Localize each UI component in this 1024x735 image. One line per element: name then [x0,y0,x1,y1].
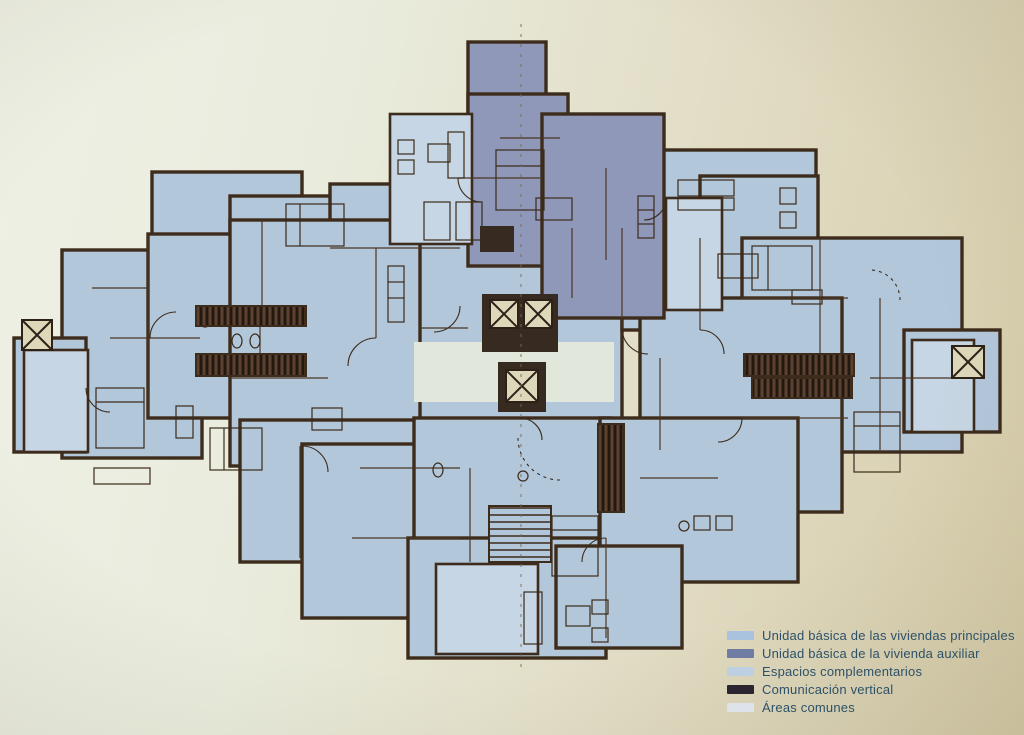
legend-swatch-areas-comunes [727,703,754,712]
legend-swatch-espacios-complementarios [727,667,754,676]
floor-plan [0,0,1024,735]
legend-label-vivienda-auxiliar: Unidad básica de la vivienda auxiliar [762,647,980,660]
plan-root [14,24,1000,668]
legend-swatch-comunicacion-vertical [727,685,754,694]
legend-item-comunicacion-vertical: Comunicación vertical [727,683,1015,696]
legend-item-areas-comunes: Áreas comunes [727,701,1015,714]
stairs [489,506,551,562]
legend-label-comunicacion-vertical: Comunicación vertical [762,683,893,696]
legend-item-vivienda-auxiliar: Unidad básica de la vivienda auxiliar [727,647,1015,660]
legend-swatch-vivienda-auxiliar [727,649,754,658]
legend-swatch-viviendas-principales [727,631,754,640]
legend: Unidad básica de las viviendas principal… [727,629,1015,714]
page: { "legend": { "text_color": "#2d5168", "… [0,0,1024,735]
legend-label-areas-comunes: Áreas comunes [762,701,855,714]
legend-label-viviendas-principales: Unidad básica de las viviendas principal… [762,629,1015,642]
legend-item-viviendas-principales: Unidad básica de las viviendas principal… [727,629,1015,642]
legend-item-espacios-complementarios: Espacios complementarios [727,665,1015,678]
legend-label-espacios-complementarios: Espacios complementarios [762,665,922,678]
